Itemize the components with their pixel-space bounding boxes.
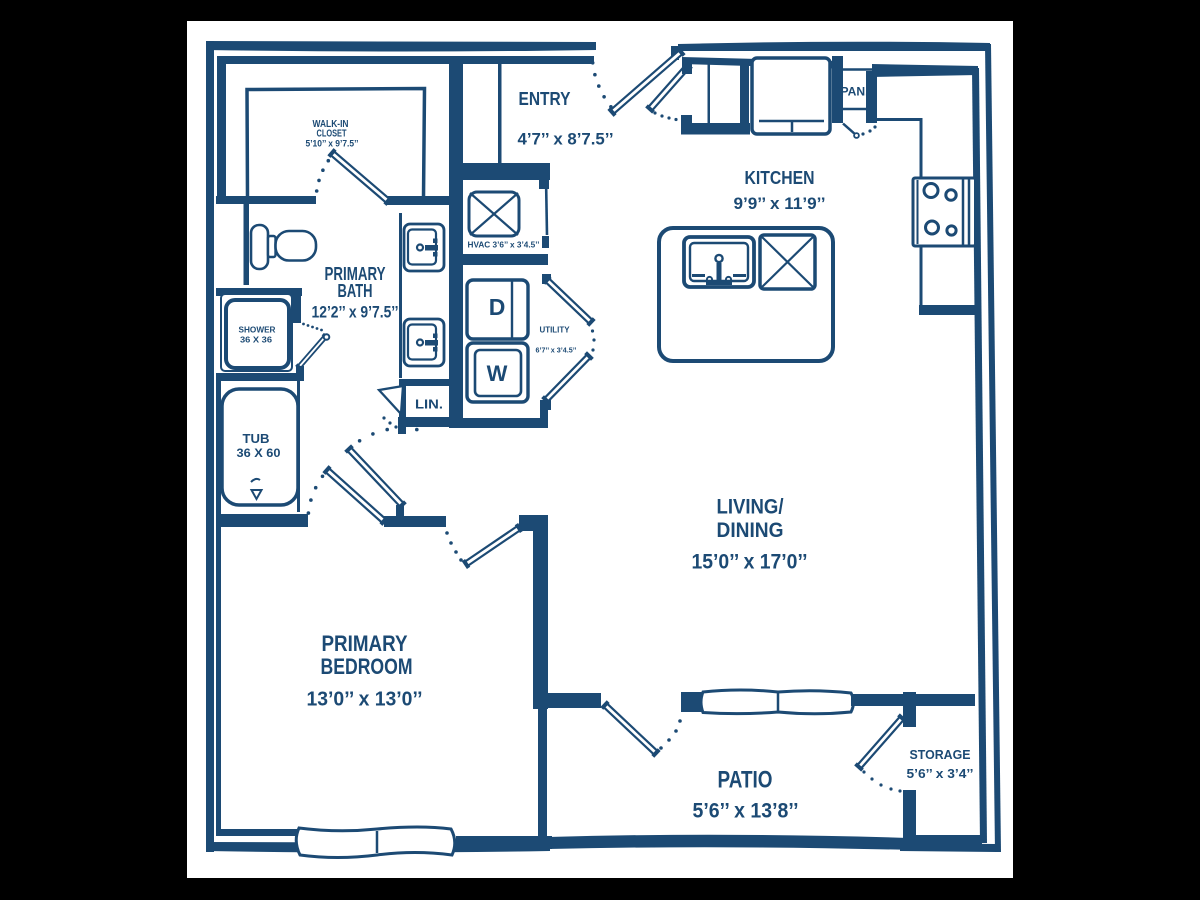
svg-text:W: W (487, 361, 508, 386)
svg-text:5’6’’ x 3’4’’: 5’6’’ x 3’4’’ (907, 767, 974, 781)
svg-text:4’7’’ x 8’7.5’’: 4’7’’ x 8’7.5’’ (518, 130, 614, 149)
svg-text:13’0’’ x 13’0’’: 13’0’’ x 13’0’’ (307, 689, 423, 711)
svg-text:9’9’’ x 11’9’’: 9’9’’ x 11’9’’ (734, 194, 826, 213)
svg-text:6’7’’ x 3’4.5’’: 6’7’’ x 3’4.5’’ (536, 346, 577, 355)
svg-text:15’0’’ x 17’0’’: 15’0’’ x 17’0’’ (692, 551, 808, 574)
svg-text:36 X 60: 36 X 60 (237, 446, 281, 460)
svg-text:12’2’’ x 9’7.5’’: 12’2’’ x 9’7.5’’ (312, 303, 399, 322)
svg-text:BEDROOM: BEDROOM (321, 654, 413, 679)
svg-text:36 X 36: 36 X 36 (240, 336, 273, 345)
svg-text:KITCHEN: KITCHEN (745, 168, 815, 188)
svg-text:PAN.: PAN. (841, 85, 869, 99)
svg-text:TUB: TUB (243, 431, 270, 446)
svg-text:PATIO: PATIO (718, 767, 773, 794)
svg-text:5’10’’ x 9’7.5’’: 5’10’’ x 9’7.5’’ (306, 139, 359, 150)
svg-text:SHOWER: SHOWER (239, 326, 276, 335)
svg-text:BATH: BATH (338, 281, 373, 301)
svg-text:D: D (489, 294, 506, 320)
svg-text:PRIMARY: PRIMARY (322, 631, 408, 656)
svg-text:LIN.: LIN. (415, 398, 443, 412)
svg-text:ENTRY: ENTRY (519, 89, 571, 109)
svg-text:UTILITY: UTILITY (540, 326, 571, 335)
svg-text:LIVING/: LIVING/ (717, 496, 784, 519)
svg-text:STORAGE: STORAGE (910, 748, 971, 762)
svg-text:DINING: DINING (717, 519, 784, 542)
svg-text:HVAC 3’6’’ x 3’4.5’’: HVAC 3’6’’ x 3’4.5’’ (468, 241, 540, 250)
svg-text:5’6’’ x 13’8’’: 5’6’’ x 13’8’’ (693, 800, 799, 823)
